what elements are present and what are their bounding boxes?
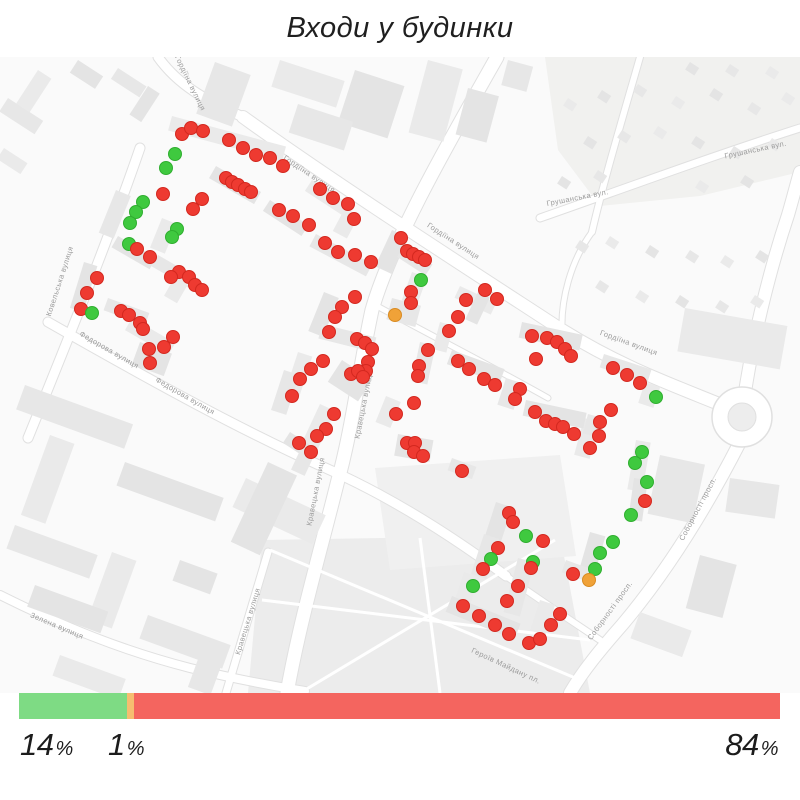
entrance-marker-red — [303, 219, 316, 232]
entrance-marker-red — [137, 323, 150, 336]
orange-percent-value: 1 — [108, 727, 125, 762]
entrance-marker-red — [245, 186, 258, 199]
entrance-marker-green — [629, 457, 642, 470]
entrance-marker-red — [593, 430, 606, 443]
entrance-marker-green — [160, 162, 173, 175]
entrance-marker-red — [196, 193, 209, 206]
percent-sign: % — [127, 738, 144, 760]
entrance-marker-red — [477, 563, 490, 576]
entrance-marker-red — [621, 369, 634, 382]
entrance-marker-red — [329, 311, 342, 324]
entrance-marker-red — [607, 362, 620, 375]
red-percent-label: 84% — [725, 727, 778, 763]
entrance-marker-red — [408, 397, 421, 410]
entrance-marker-red — [273, 204, 286, 217]
entrance-marker-green — [124, 217, 137, 230]
entrance-marker-red — [305, 363, 318, 376]
entrance-marker-red — [422, 344, 435, 357]
entrance-marker-red — [567, 568, 580, 581]
entrance-marker-red — [197, 125, 210, 138]
entrance-marker-red — [512, 580, 525, 593]
entrance-marker-red — [473, 610, 486, 623]
entrance-marker-red — [509, 393, 522, 406]
entrance-marker-red — [366, 343, 379, 356]
entrance-marker-orange — [583, 574, 596, 587]
entrance-marker-red — [405, 297, 418, 310]
entrance-marker-red — [365, 256, 378, 269]
entrance-marker-red — [443, 325, 456, 338]
entrance-marker-red — [342, 198, 355, 211]
entrance-marker-red — [332, 246, 345, 259]
entrance-marker-red — [537, 535, 550, 548]
entrance-marker-red — [456, 465, 469, 478]
entrance-marker-orange — [389, 309, 402, 322]
entrance-marker-red — [185, 122, 198, 135]
entrance-marker-red — [311, 430, 324, 443]
report-page: Входи у будинки Гордіїна вулицяГордіїна … — [0, 0, 800, 800]
entrance-marker-red — [584, 442, 597, 455]
page-title: Входи у будинки — [0, 0, 800, 57]
entrance-marker-red — [123, 309, 136, 322]
entrance-marker-red — [349, 249, 362, 262]
entrance-marker-red — [223, 134, 236, 147]
entrance-marker-red — [594, 416, 607, 429]
entrance-marker-red — [545, 619, 558, 632]
entrance-marker-red — [489, 619, 502, 632]
entrance-marker-red — [157, 188, 170, 201]
entrance-marker-red — [323, 326, 336, 339]
entrance-marker-red — [452, 355, 465, 368]
entrance-marker-red — [237, 142, 250, 155]
map-building — [725, 478, 779, 519]
entrance-marker-green — [650, 391, 663, 404]
entrance-marker-green — [607, 536, 620, 549]
entrance-marker-red — [196, 284, 209, 297]
entrance-marker-green — [166, 231, 179, 244]
entrance-marker-red — [525, 562, 538, 575]
entrance-marker-red — [634, 377, 647, 390]
entrance-marker-red — [568, 428, 581, 441]
entrance-marker-red — [605, 404, 618, 417]
entrance-marker-red — [328, 408, 341, 421]
entrance-marker-red — [479, 284, 492, 297]
entrance-marker-green — [625, 509, 638, 522]
entrance-marker-red — [452, 311, 465, 324]
entrance-marker-red — [286, 390, 299, 403]
orange-percent-label: 1% — [108, 727, 144, 763]
entrance-marker-red — [314, 183, 327, 196]
entrance-marker-red — [419, 254, 432, 267]
entrance-marker-green — [169, 148, 182, 161]
bar-segment-orange — [127, 693, 135, 719]
entrance-marker-green — [594, 547, 607, 560]
green-percent-label: 14% — [20, 727, 73, 763]
entrance-marker-red — [319, 237, 332, 250]
entrance-marker-red — [91, 272, 104, 285]
entrance-marker-red — [143, 343, 156, 356]
entrance-marker-green — [86, 307, 99, 320]
entrance-marker-green — [641, 476, 654, 489]
entrance-marker-red — [81, 287, 94, 300]
entrance-marker-red — [417, 450, 430, 463]
bar-segment-red — [134, 693, 780, 719]
entrance-marker-red — [144, 357, 157, 370]
entrance-marker-red — [390, 408, 403, 421]
entrance-marker-red — [158, 341, 171, 354]
green-percent-value: 14 — [20, 727, 53, 762]
entrance-marker-red — [264, 152, 277, 165]
entrance-marker-red — [457, 600, 470, 613]
entrance-marker-red — [144, 251, 157, 264]
map-canvas: Гордіїна вулицяГордіїна вулицяГордіїна в… — [0, 57, 800, 693]
entrance-marker-red — [287, 210, 300, 223]
entrance-marker-red — [131, 243, 144, 256]
entrance-marker-red — [277, 160, 290, 173]
entrance-marker-red — [530, 353, 543, 366]
entrance-marker-red — [554, 608, 567, 621]
entrance-marker-red — [327, 192, 340, 205]
entrance-marker-red — [317, 355, 330, 368]
entrance-marker-red — [165, 271, 178, 284]
entrance-marker-red — [491, 293, 504, 306]
entrance-marker-red — [293, 437, 306, 450]
entrance-marker-red — [187, 203, 200, 216]
entrance-share-bar — [19, 693, 780, 719]
bar-segment-green — [19, 693, 127, 719]
entrance-marker-red — [526, 330, 539, 343]
entrance-marker-red — [529, 406, 542, 419]
entrance-marker-red — [463, 363, 476, 376]
entrance-marker-red — [503, 628, 516, 641]
entrance-marker-red — [294, 373, 307, 386]
entrance-marker-red — [534, 633, 547, 646]
entrance-marker-red — [412, 370, 425, 383]
entrance-marker-red — [349, 291, 362, 304]
percent-sign: % — [761, 738, 778, 760]
entrance-marker-red — [460, 294, 473, 307]
entrance-marker-green — [520, 530, 533, 543]
red-percent-value: 84 — [725, 727, 758, 762]
entrance-marker-green — [415, 274, 428, 287]
entrance-marker-red — [395, 232, 408, 245]
entrance-marker-red — [489, 379, 502, 392]
entrance-marker-red — [348, 213, 361, 226]
bar-labels-row: 14% 1% 84% — [0, 719, 800, 800]
entrance-marker-red — [167, 331, 180, 344]
entrance-marker-red — [357, 371, 370, 384]
entrance-marker-red — [305, 446, 318, 459]
map-image: Гордіїна вулицяГордіїна вулицяГордіїна в… — [0, 57, 800, 693]
entrance-marker-red — [565, 350, 578, 363]
entrance-marker-red — [639, 495, 652, 508]
percent-sign: % — [55, 738, 72, 760]
entrance-marker-green — [467, 580, 480, 593]
entrance-marker-red — [507, 516, 520, 529]
entrance-marker-red — [501, 595, 514, 608]
entrance-marker-red — [250, 149, 263, 162]
